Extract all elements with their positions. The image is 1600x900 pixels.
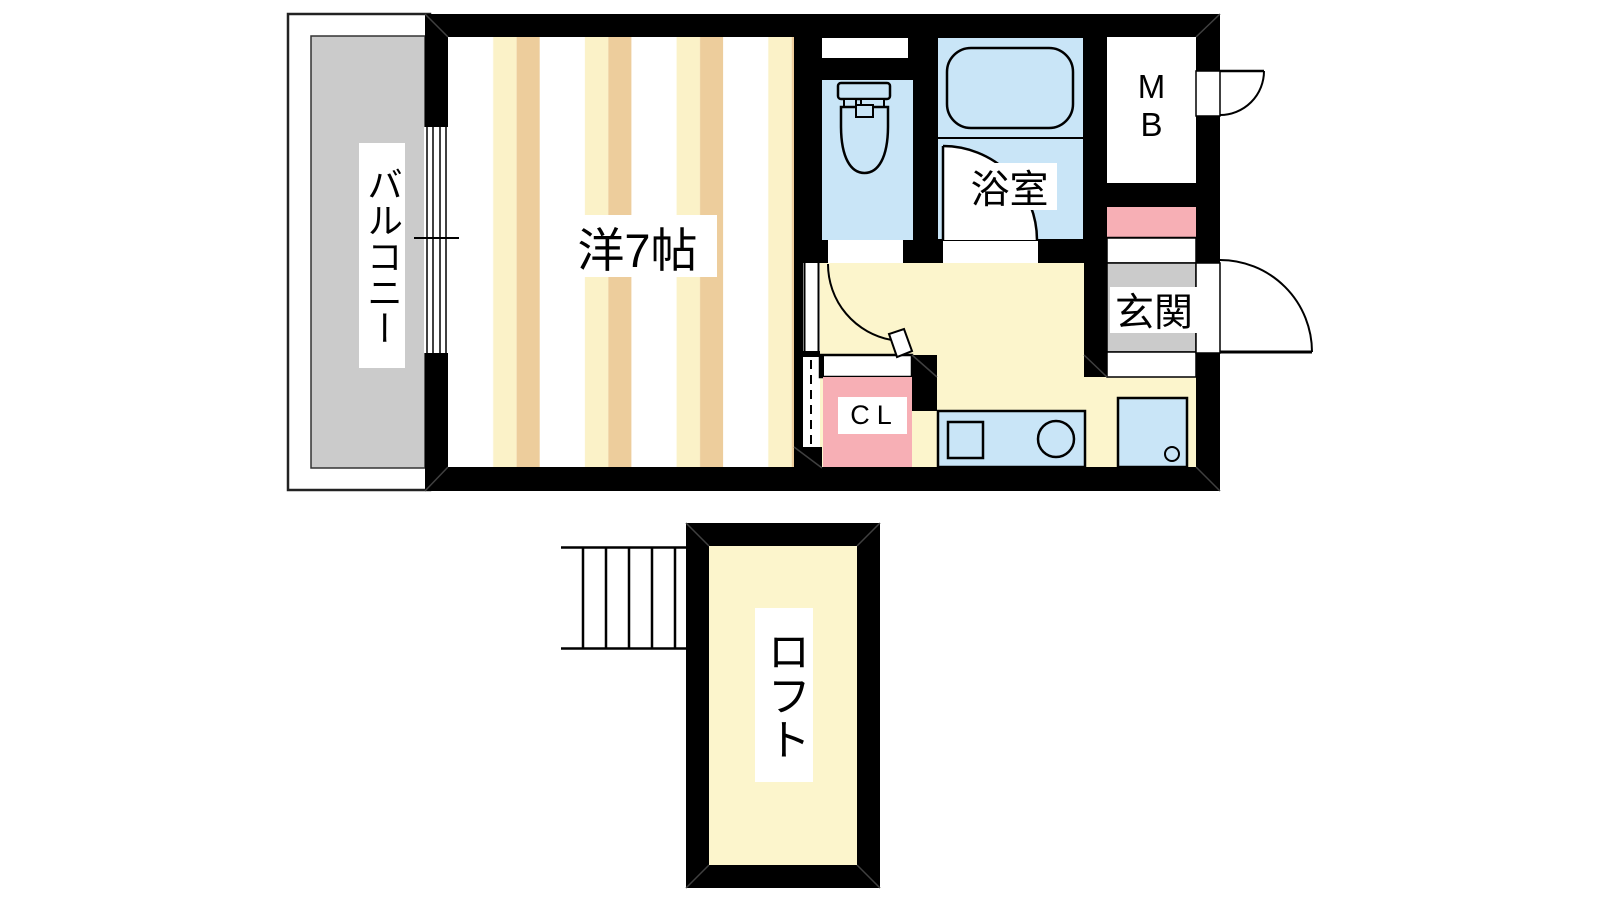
western-room-label: 洋7帖: [558, 215, 717, 277]
closet-label: CL: [838, 397, 907, 434]
front-door-swing: [1220, 260, 1312, 352]
meter-box-door-opening: [1196, 71, 1220, 116]
meter-box-label-line2: B: [1140, 106, 1162, 144]
loft-label: ロフト: [755, 608, 813, 782]
front-door-opening: [1196, 263, 1220, 353]
stove-icon: [948, 422, 983, 458]
toilet-icon: [838, 83, 890, 173]
meter-box-label: M B: [1107, 60, 1196, 152]
meter-box-door-swing: [1220, 71, 1264, 115]
kitchen-counter: [938, 411, 1085, 467]
entrance-label: 玄関: [1110, 287, 1198, 333]
washing-machine-icon: [1118, 398, 1187, 467]
bathroom-label: 浴室: [962, 163, 1057, 210]
balcony-label: バルコニー: [359, 143, 405, 368]
toilet-wall-vent: [822, 38, 908, 58]
stairs-icon: [561, 547, 687, 649]
entrance-storage: [1107, 207, 1196, 238]
meter-box-label-line1: M: [1138, 68, 1166, 106]
room-partition: [803, 263, 820, 447]
floor-plan-canvas: バルコニー 洋7帖 浴室 M B 玄関 CL ロフト: [0, 0, 1600, 900]
sink-icon: [1038, 421, 1074, 457]
